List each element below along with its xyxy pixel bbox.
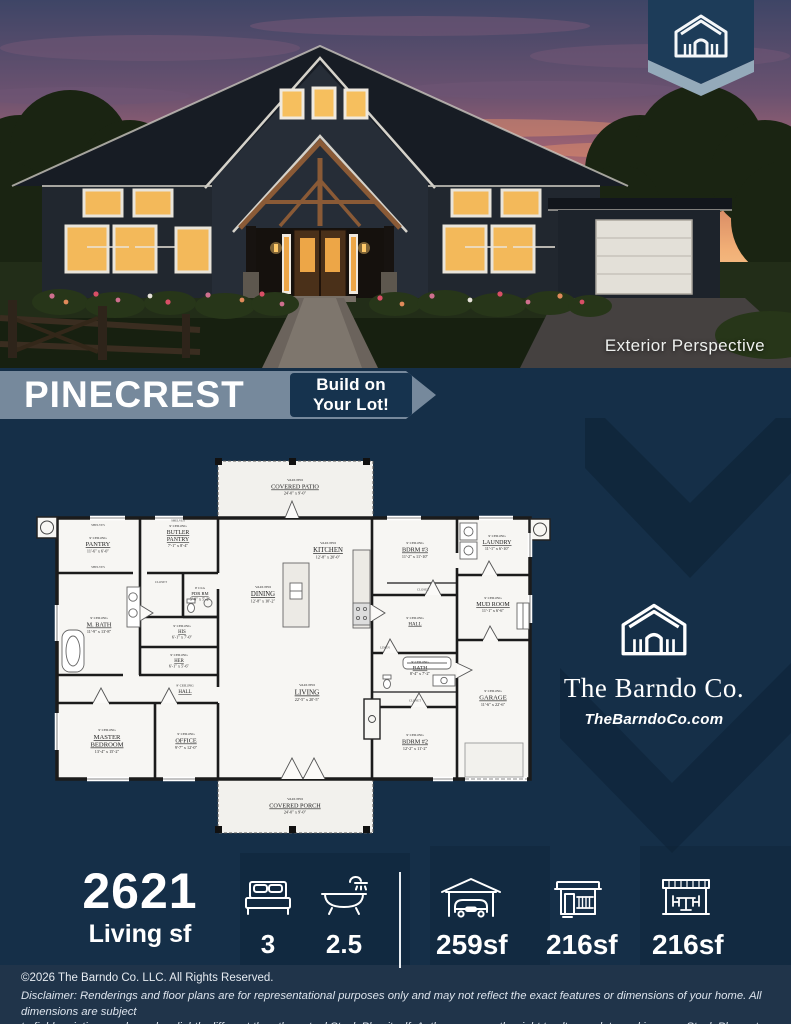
hero-exterior-photo: Exterior Perspective [0,0,791,368]
svg-text:9' CEILING: 9' CEILING [176,684,194,688]
stat-living-area: 2621 Living sf [70,866,210,949]
stat-bedrooms: 3 [238,878,298,960]
build-on-your-lot-tag: Build on Your Lot! [290,373,412,417]
svg-text:SHELVES: SHELVES [91,565,105,569]
svg-text:9' CEILING: 9' CEILING [411,660,429,664]
bath-icon [316,870,372,918]
svg-text:9' CEILING: 9' CEILING [170,653,188,657]
svg-text:11'-9" x 13'-8": 11'-9" x 13'-8" [87,629,112,634]
svg-text:BDRM #3: BDRM #3 [402,547,428,554]
svg-text:VAULTED: VAULTED [320,541,336,545]
brand-pennant-badge [648,0,754,100]
svg-text:12'-8" x 20'-0": 12'-8" x 20'-0" [316,555,341,560]
svg-text:OFFICE: OFFICE [175,738,197,745]
bathrooms-count: 2.5 [312,929,376,960]
svg-text:24'-0" x 9'-0": 24'-0" x 9'-0" [284,810,307,815]
svg-text:COVERED PATIO: COVERED PATIO [271,484,319,491]
porch-icon [551,876,605,920]
floor-plan: 9' CEILING PANTRY 11'-6" x 6'-0" 9' CEIL… [35,455,565,845]
svg-text:9' CEILING: 9' CEILING [406,541,424,545]
svg-text:COVERED PORCH: COVERED PORCH [269,803,321,810]
svg-text:6'-1" x 7'-0": 6'-1" x 7'-0" [172,635,193,640]
svg-text:HALL: HALL [408,623,421,628]
svg-text:9' CEILING: 9' CEILING [484,596,502,600]
svg-text:PANTRY: PANTRY [86,541,111,548]
svg-text:24'-0" x 9'-0": 24'-0" x 9'-0" [284,491,307,496]
svg-text:13'-4" x 15'-2": 13'-4" x 15'-2" [95,749,120,754]
garage-icon [440,876,502,920]
garage-door [596,220,692,294]
svg-text:11'-1" x 6'-6": 11'-1" x 6'-6" [482,608,505,613]
svg-text:LIVING: LIVING [295,689,320,697]
garage-sf-value: 259sf [436,929,506,961]
svg-text:HALL: HALL [178,690,191,695]
patio-icon [657,876,715,920]
copyright-text: ©2026 The Barndo Co. LLC. All Rights Res… [21,972,273,984]
svg-text:9' CEILING: 9' CEILING [89,536,107,540]
svg-text:VAULTED: VAULTED [287,797,303,801]
title-banner: PINECREST Build on Your Lot! [0,369,791,419]
svg-text:SHELVES: SHELVES [91,523,105,527]
svg-text:PDR RM: PDR RM [191,591,208,596]
stat-garage: 259sf [436,876,506,961]
disclaimer-text: Disclaimer: Renderings and floor plans a… [21,989,776,1024]
clerestory-windows [281,88,367,118]
svg-text:SHELVES: SHELVES [171,519,185,523]
bed-icon [240,878,296,918]
svg-text:CLOSET: CLOSET [155,580,167,584]
svg-text:9' CEILING: 9' CEILING [406,733,424,737]
svg-text:9' CEILING: 9' CEILING [169,524,187,528]
svg-text:BUTLER: BUTLER [167,530,190,536]
svg-text:MASTER: MASTER [94,734,121,741]
svg-text:6'-1" x 5'-6": 6'-1" x 5'-6" [169,664,190,669]
svg-text:9' CEILING: 9' CEILING [90,616,108,620]
disclaimer-line-1: Disclaimer: Renderings and floor plans a… [21,990,762,1018]
svg-text:DINING: DINING [251,591,275,598]
svg-text:7'-1" x 8'-4": 7'-1" x 8'-4" [168,543,189,548]
house-body [57,518,530,779]
svg-text:CLOSET: CLOSET [409,699,421,703]
svg-text:VAULTED: VAULTED [255,585,271,589]
stat-bathrooms: 2.5 [312,870,376,960]
svg-text:9' CEILING: 9' CEILING [177,732,195,736]
svg-text:9'-7" x 12'-0": 9'-7" x 12'-0" [175,745,198,750]
svg-text:9' CLG: 9' CLG [195,586,206,590]
brand-block: The Barndo Co. TheBarndoCo.com [554,598,754,728]
svg-text:KITCHEN: KITCHEN [313,547,343,554]
living-sf-label: Living sf [70,920,210,949]
photo-caption: Exterior Perspective [605,336,765,356]
tag-line1: Build on [316,375,386,395]
svg-text:22'-5" x 20'-5": 22'-5" x 20'-5" [295,697,320,702]
svg-text:9' CEILING: 9' CEILING [98,728,116,732]
brand-website: TheBarndoCo.com [554,711,754,728]
bedrooms-count: 3 [238,929,298,960]
svg-text:5'-0" x 5'-2": 5'-0" x 5'-2" [190,597,211,602]
svg-text:8'-4" x 7'-2": 8'-4" x 7'-2" [410,671,431,676]
svg-text:LINEN: LINEN [380,646,390,650]
barn-logo-icon [617,598,691,658]
footer: ©2026 The Barndo Co. LLC. All Rights Res… [0,965,791,1024]
svg-text:11'-2" x 11'-10": 11'-2" x 11'-10" [402,554,429,559]
svg-text:11'-6" x 6'-0": 11'-6" x 6'-0" [87,549,110,554]
svg-text:GARAGE: GARAGE [479,695,506,702]
svg-text:9' CEILING: 9' CEILING [488,534,506,538]
stats-divider [399,872,401,968]
porch-sf-value: 216sf [546,929,610,961]
svg-text:12'-8" x 10'-2": 12'-8" x 10'-2" [251,599,276,604]
flyer-page: Exterior Perspective PINECREST Build on … [0,0,791,1024]
stat-porch: 216sf [546,876,610,961]
patio-sf-value: 216sf [652,929,720,961]
plan-name: PINECREST [24,371,245,419]
svg-text:M. BATH: M. BATH [87,622,112,629]
svg-text:11'-1" x 6'-10": 11'-1" x 6'-10" [485,546,510,551]
svg-text:BEDROOM: BEDROOM [91,742,124,749]
living-sf-value: 2621 [70,866,210,916]
svg-text:12'-2" x 11'-2": 12'-2" x 11'-2" [403,746,428,751]
title-band: PINECREST Build on Your Lot! [0,371,436,419]
svg-text:BDRM #2: BDRM #2 [402,739,428,746]
svg-text:9' CEILING: 9' CEILING [406,616,424,620]
svg-text:11'-6" x 22'-6": 11'-6" x 22'-6" [481,702,506,707]
svg-text:9' CEILING: 9' CEILING [173,624,191,628]
svg-text:VAULTED: VAULTED [287,478,303,482]
brand-name: The Barndo Co. [554,673,754,704]
tag-line2: Your Lot! [313,395,389,415]
svg-text:VAULTED: VAULTED [299,683,315,687]
svg-text:9' CEILING: 9' CEILING [484,689,502,693]
svg-text:CLOSET: CLOSET [417,588,429,592]
stat-patio: 216sf [652,876,720,961]
